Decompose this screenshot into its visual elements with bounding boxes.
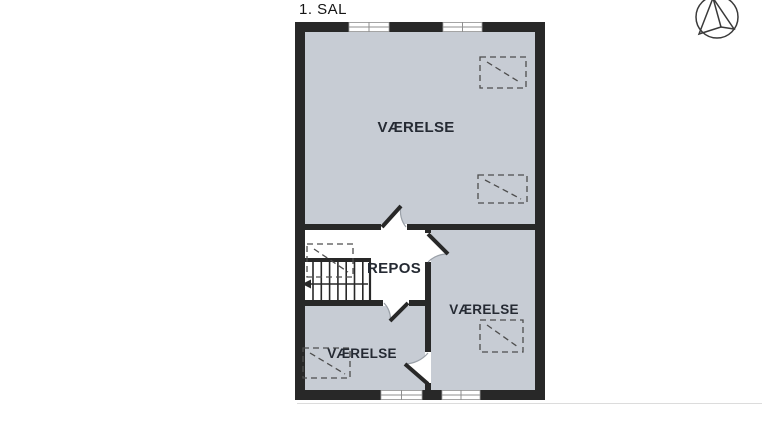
room-label-top: VÆRELSE bbox=[366, 119, 466, 136]
floor-title: 1. SAL bbox=[299, 1, 347, 18]
floor-plan-page: 1. SAL VÆRELSE REPOS VÆRELSE VÆRELSE bbox=[0, 0, 768, 422]
wall-interior-c-seg1 bbox=[425, 224, 431, 233]
window-top-1 bbox=[349, 23, 389, 32]
room-label-bottom-right: VÆRELSE bbox=[434, 302, 534, 317]
wall-exterior-top bbox=[295, 22, 545, 32]
window-top-2 bbox=[443, 23, 482, 32]
wall-exterior-right bbox=[535, 22, 545, 400]
wall-exterior-left bbox=[295, 22, 305, 400]
room-label-landing: REPOS bbox=[354, 260, 434, 277]
window-bottom-1 bbox=[381, 391, 422, 400]
room-fills bbox=[305, 32, 535, 390]
room-label-bottom-left: VÆRELSE bbox=[312, 346, 412, 361]
north-compass-icon bbox=[696, 0, 738, 38]
window-bottom-2 bbox=[442, 391, 480, 400]
wall-interior-a-left bbox=[295, 224, 381, 230]
wall-interior-b-left bbox=[295, 300, 383, 306]
